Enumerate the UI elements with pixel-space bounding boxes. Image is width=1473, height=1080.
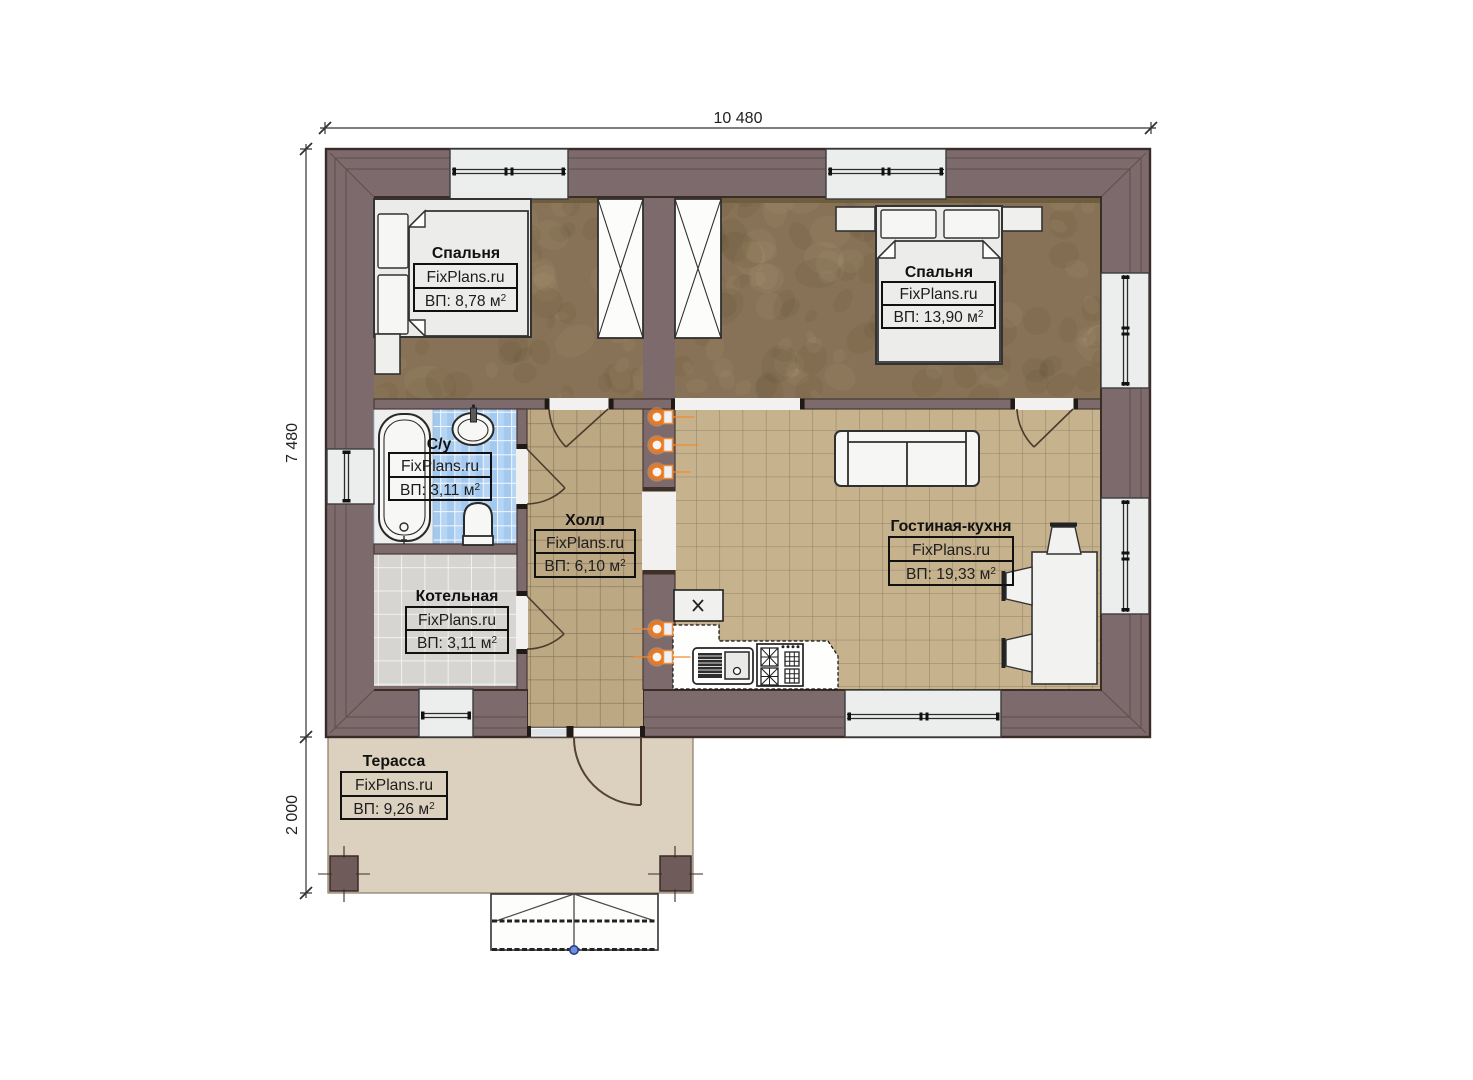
svg-text:FixPlans.ru: FixPlans.ru <box>418 612 496 629</box>
svg-text:FixPlans.ru: FixPlans.ru <box>401 458 479 475</box>
svg-text:2 000: 2 000 <box>284 795 301 835</box>
svg-text:FixPlans.ru: FixPlans.ru <box>546 535 624 552</box>
svg-text:Спальня: Спальня <box>905 264 973 281</box>
svg-text:FixPlans.ru: FixPlans.ru <box>900 286 978 303</box>
svg-text:ВП: 19,33 м2: ВП: 19,33 м2 <box>906 566 996 583</box>
svg-text:Гостиная-кухня: Гостиная-кухня <box>890 518 1011 535</box>
svg-text:FixPlans.ru: FixPlans.ru <box>355 777 433 794</box>
svg-text:FixPlans.ru: FixPlans.ru <box>912 542 990 559</box>
svg-text:ВП: 6,10 м2: ВП: 6,10 м2 <box>544 558 626 575</box>
svg-text:ВП: 13,90 м2: ВП: 13,90 м2 <box>894 309 984 326</box>
svg-text:Холл: Холл <box>565 512 605 529</box>
svg-text:FixPlans.ru: FixPlans.ru <box>427 269 505 286</box>
svg-text:ВП: 3,11 м2: ВП: 3,11 м2 <box>400 482 481 499</box>
svg-text:10 480: 10 480 <box>714 110 763 127</box>
svg-text:ВП: 9,26 м2: ВП: 9,26 м2 <box>353 801 435 818</box>
svg-text:Терасса: Терасса <box>363 753 426 770</box>
svg-text:ВП: 3,11 м2: ВП: 3,11 м2 <box>417 635 498 652</box>
svg-text:Котельная: Котельная <box>416 588 499 605</box>
svg-text:Спальня: Спальня <box>432 245 500 262</box>
svg-text:ВП: 8,78 м2: ВП: 8,78 м2 <box>425 293 507 310</box>
svg-text:7 480: 7 480 <box>284 423 301 463</box>
svg-text:С/у: С/у <box>427 436 452 453</box>
